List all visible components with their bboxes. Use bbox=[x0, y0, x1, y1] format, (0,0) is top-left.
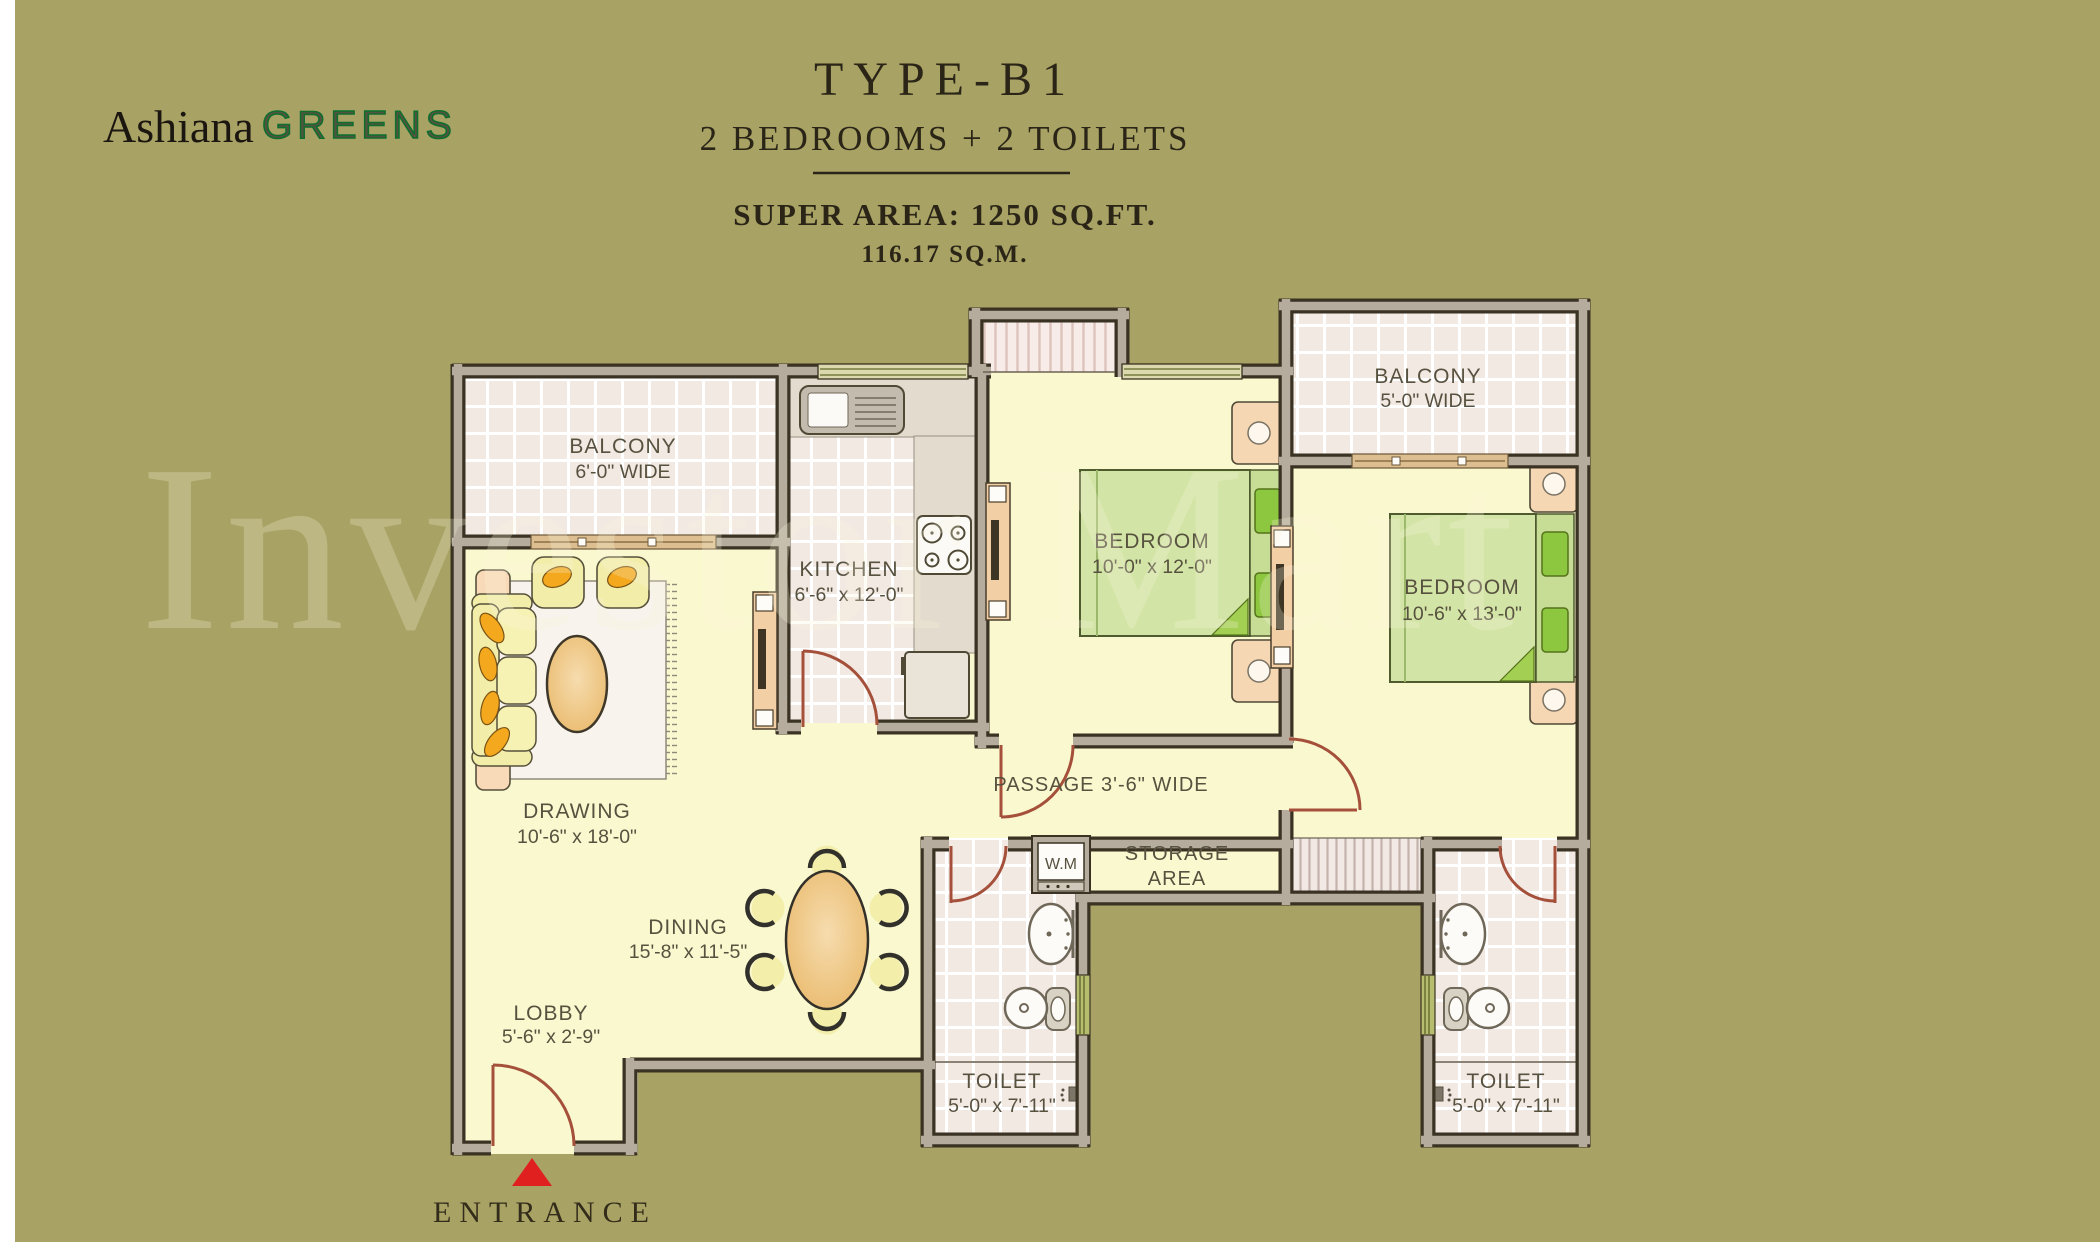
toilet1-window bbox=[1076, 975, 1090, 1035]
watermark: Investor Mart bbox=[140, 417, 1520, 680]
toilet2-label: TOILET bbox=[1466, 1070, 1545, 1093]
brand-name: Ashiana bbox=[103, 101, 254, 152]
bedroom1-top-window bbox=[1122, 364, 1242, 379]
dining-dims: 15'-8" x 11'-5" bbox=[629, 941, 748, 963]
shower-icon bbox=[1061, 1087, 1079, 1102]
storage-label-2: AREA bbox=[1148, 868, 1206, 890]
dining-chair bbox=[752, 892, 785, 925]
balcony-tr-dims: 5'-0" WIDE bbox=[1380, 390, 1475, 412]
dining-chair bbox=[752, 956, 785, 989]
washbasin-icon bbox=[1441, 904, 1485, 964]
pillow bbox=[1542, 608, 1568, 652]
wm-label: W.M bbox=[1045, 856, 1077, 873]
lobby-label: LOBBY bbox=[513, 1002, 588, 1025]
brand-logo: Ashiana GREENS bbox=[103, 101, 457, 152]
plan-type-title: TYPE-B1 bbox=[814, 53, 1076, 106]
dining-chair bbox=[870, 892, 903, 925]
plan-subtitle: 2 BEDROOMS + 2 TOILETS bbox=[700, 119, 1191, 158]
super-area-text: SUPER AREA: 1250 SQ.FT. bbox=[733, 197, 1157, 232]
storage-label-1: STORAGE bbox=[1125, 843, 1229, 865]
floorplan-page: W.M BALCONY 6'-0" WIDE KITCHEN 6'-6" x 1… bbox=[0, 0, 2100, 1260]
brand-sub-name: GREENS bbox=[262, 104, 457, 147]
drawing-label: DRAWING bbox=[523, 800, 631, 823]
dining-chair bbox=[870, 956, 903, 989]
shower-icon bbox=[1434, 1087, 1452, 1102]
wardrobe bbox=[1292, 838, 1422, 895]
pillow bbox=[1542, 532, 1568, 576]
drawing-dims: 10'-6" x 18'-0" bbox=[517, 826, 637, 848]
toilet1-label: TOILET bbox=[962, 1070, 1041, 1093]
wc-icon bbox=[1444, 988, 1509, 1030]
passage-label: PASSAGE 3'-6" WIDE bbox=[993, 774, 1208, 796]
lobby-floor bbox=[456, 1058, 638, 1154]
kitchen-top-window bbox=[818, 364, 968, 379]
lobby-dims: 5'-6" x 2'-9" bbox=[502, 1026, 600, 1048]
dining-label: DINING bbox=[648, 916, 728, 939]
dining-table bbox=[786, 871, 868, 1009]
bedroom1-bay-ledge bbox=[983, 321, 1115, 372]
toilet2-dims: 5'-0" x 7'-11" bbox=[1452, 1095, 1560, 1117]
floorplan-canvas: W.M BALCONY 6'-0" WIDE KITCHEN 6'-6" x 1… bbox=[0, 0, 2100, 1260]
washing-machine-box: W.M bbox=[1032, 836, 1090, 893]
entrance-label: ENTRANCE bbox=[433, 1196, 657, 1229]
toilet2-window bbox=[1421, 975, 1435, 1035]
balcony-tr-label: BALCONY bbox=[1374, 365, 1481, 388]
metric-area-text: 116.17 SQ.M. bbox=[861, 241, 1028, 268]
washbasin-icon bbox=[1029, 904, 1073, 964]
toilet1-dims: 5'-0" x 7'-11" bbox=[948, 1095, 1056, 1117]
wc-icon bbox=[1005, 988, 1070, 1030]
